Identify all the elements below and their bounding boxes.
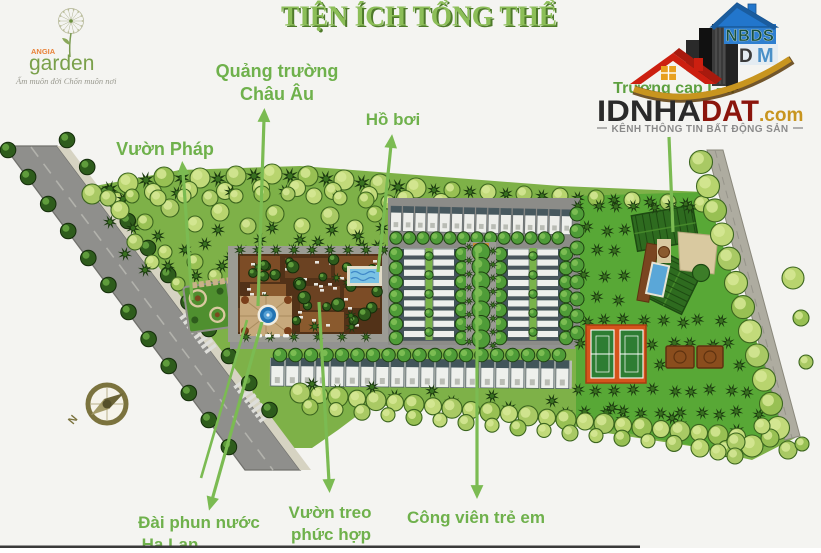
svg-text:Hồ bơi: Hồ bơi: [366, 110, 421, 129]
svg-text:Vườn treo: Vườn treo: [289, 503, 372, 522]
svg-text:phức hợp: phức hợp: [291, 525, 371, 544]
svg-text:D: D: [739, 46, 753, 67]
svg-text:garden: garden: [29, 52, 94, 75]
svg-text:M: M: [757, 45, 774, 67]
svg-text:NBDS: NBDS: [726, 27, 775, 45]
svg-text:TIỆN ÍCH TỔNG THỂ: TIỆN ÍCH TỔNG THỂ: [281, 0, 557, 33]
svg-text:Quảng trường: Quảng trường: [216, 61, 339, 81]
svg-text:Đài phun nước: Đài phun nước: [138, 513, 260, 532]
svg-text:KÊNH THÔNG TIN BẤT ĐỘNG SẢN: KÊNH THÔNG TIN BẤT ĐỘNG SẢN: [612, 122, 789, 135]
svg-text:.com: .com: [759, 105, 803, 126]
svg-text:Ấm muôn đời Chốn muôn nơi: Ấm muôn đời Chốn muôn nơi: [15, 76, 117, 86]
svg-text:Công viên trẻ em: Công viên trẻ em: [407, 508, 545, 527]
svg-text:Châu Âu: Châu Âu: [240, 83, 314, 104]
svg-text:Vườn Pháp: Vườn Pháp: [116, 139, 214, 159]
